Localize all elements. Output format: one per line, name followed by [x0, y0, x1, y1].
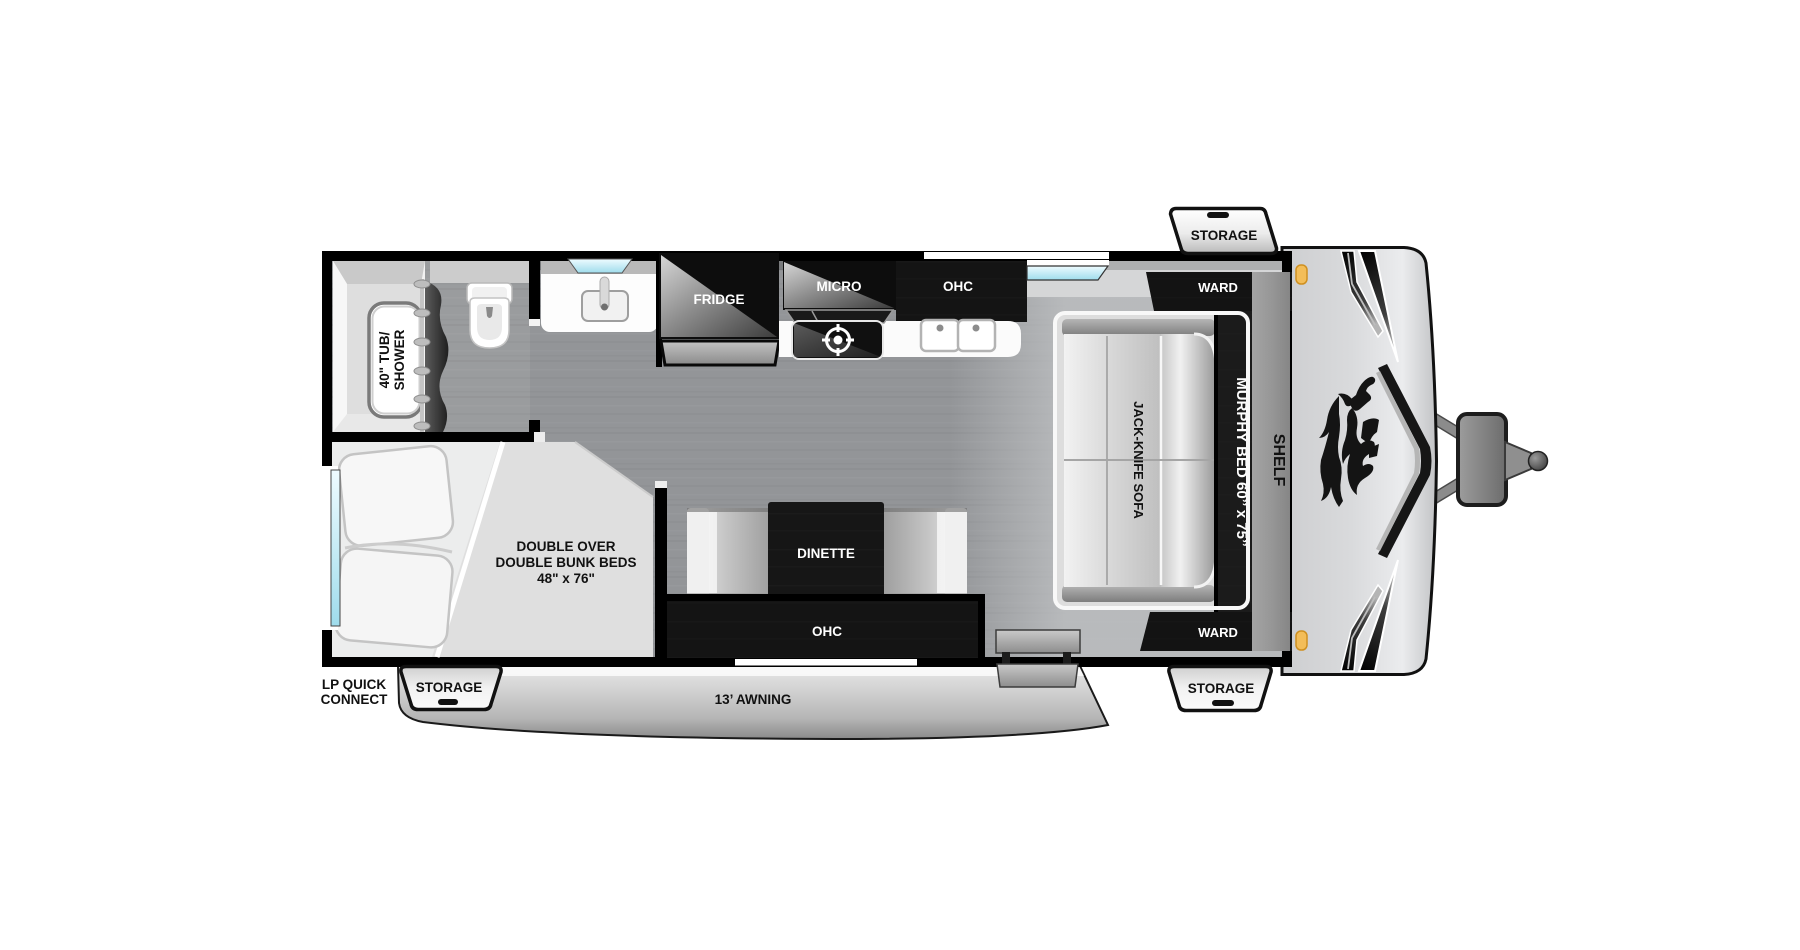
svg-text:JACK-KNIFE SOFA: JACK-KNIFE SOFA — [1131, 401, 1146, 519]
svg-text:OHC: OHC — [943, 279, 973, 294]
svg-text:OHC: OHC — [812, 624, 842, 639]
svg-text:STORAGE: STORAGE — [1188, 681, 1255, 696]
svg-text:LP QUICK: LP QUICK — [322, 677, 387, 692]
svg-text:FRIDGE: FRIDGE — [693, 292, 744, 307]
svg-text:SHELF: SHELF — [1270, 434, 1287, 487]
svg-text:MICRO: MICRO — [817, 279, 862, 294]
svg-text:DINETTE: DINETTE — [797, 546, 855, 561]
svg-text:40" TUB/: 40" TUB/ — [377, 331, 392, 388]
svg-text:CONNECT: CONNECT — [321, 692, 389, 707]
svg-text:SHOWER: SHOWER — [392, 329, 407, 390]
svg-text:WARD: WARD — [1198, 625, 1238, 640]
svg-text:STORAGE: STORAGE — [416, 680, 483, 695]
svg-text:DOUBLE OVER: DOUBLE OVER — [516, 539, 615, 554]
svg-text:48" x 76": 48" x 76" — [537, 571, 595, 586]
svg-text:WARD: WARD — [1198, 280, 1238, 295]
svg-text:13’ AWNING: 13’ AWNING — [715, 692, 792, 707]
svg-text:STORAGE: STORAGE — [1191, 228, 1258, 243]
svg-text:DOUBLE BUNK BEDS: DOUBLE BUNK BEDS — [495, 555, 636, 570]
